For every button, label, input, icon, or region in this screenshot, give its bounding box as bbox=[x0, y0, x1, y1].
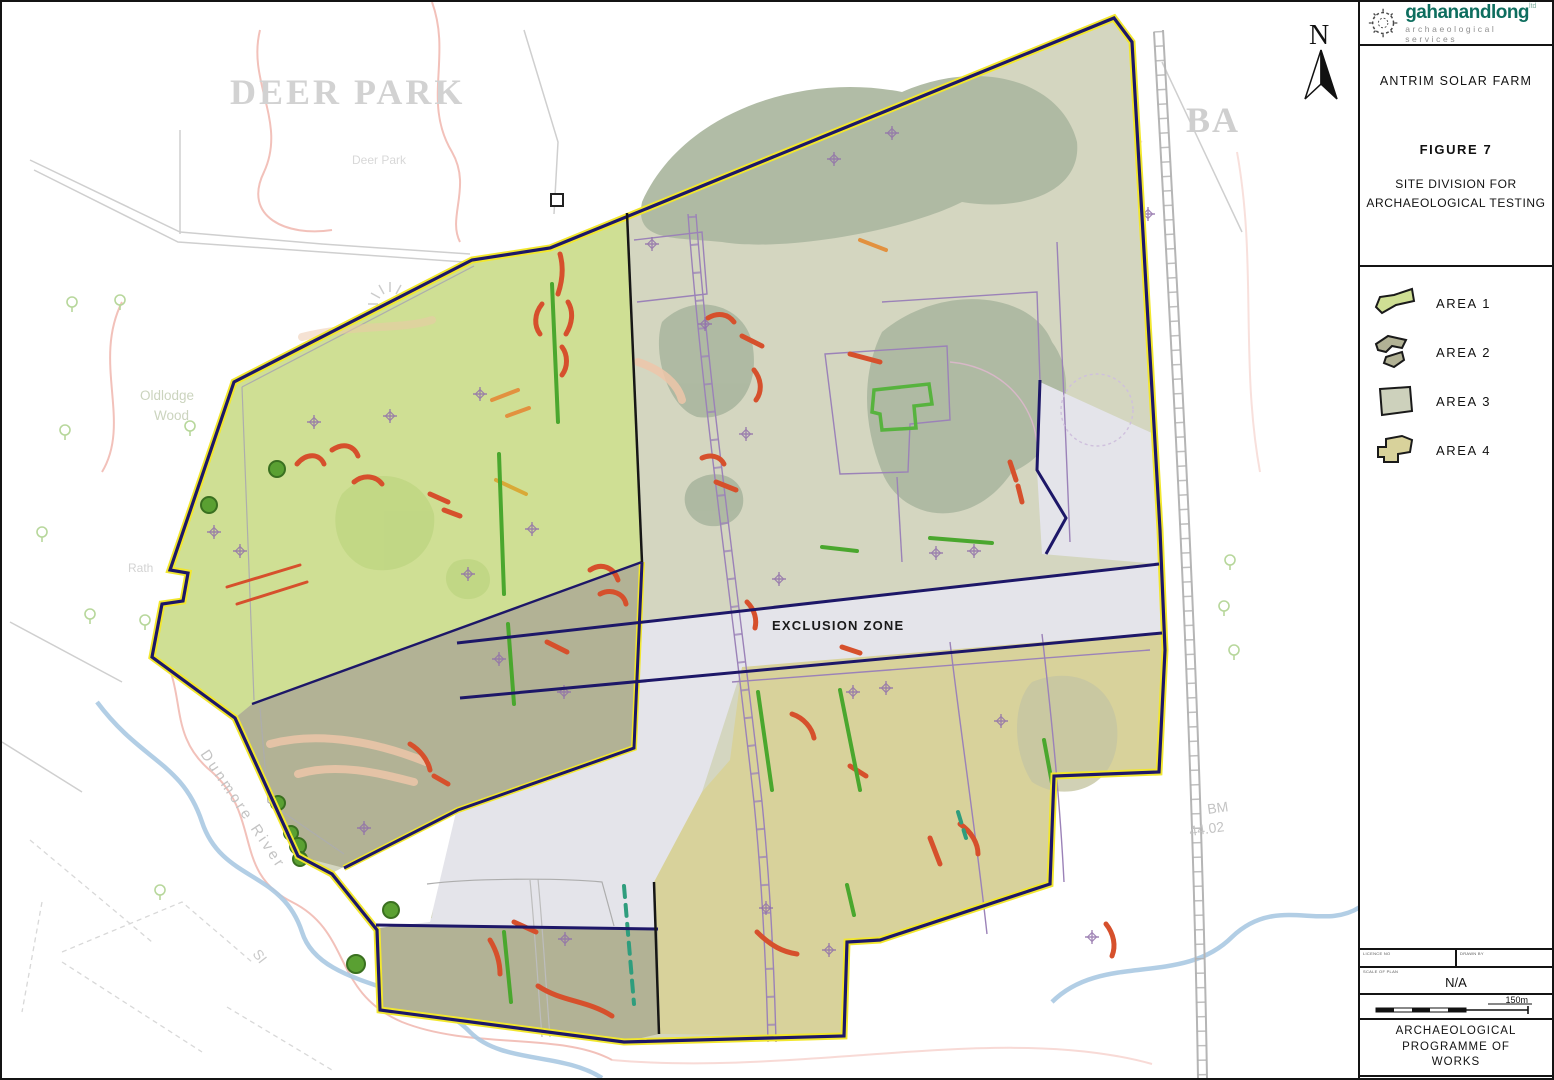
titleblock-cell-drawn: DRAWN BY bbox=[1455, 950, 1552, 966]
scale-bar-label: 150m bbox=[1505, 995, 1528, 1005]
deer-park-small-label: Deer Park bbox=[352, 153, 407, 167]
legend-swatch-area4 bbox=[1372, 430, 1420, 470]
figure-number: FIGURE 7 bbox=[1360, 142, 1552, 157]
legend-label-area4: AREA 4 bbox=[1436, 443, 1491, 458]
brand-name-b: long bbox=[1491, 2, 1529, 23]
exclusion-zone-label: EXCLUSION ZONE bbox=[772, 618, 904, 633]
brand-tagline: archaeological services bbox=[1405, 24, 1546, 44]
north-arrow: N bbox=[1305, 20, 1337, 99]
brand-name-a: gahanand bbox=[1405, 2, 1491, 23]
legend-swatch-area2 bbox=[1372, 332, 1420, 372]
basemap-field-lines bbox=[22, 840, 332, 1070]
figure-subtitle-line2: ARCHAEOLOGICAL TESTING bbox=[1360, 194, 1552, 213]
legend-label-area2: AREA 2 bbox=[1436, 345, 1491, 360]
legend-swatch-area3 bbox=[1372, 381, 1420, 421]
titleblock-row-programme: ARCHAEOLOGICAL PROGRAMME OF WORKS bbox=[1360, 1018, 1552, 1078]
survey-square-marker bbox=[551, 194, 563, 206]
programme-title-line2: WORKS bbox=[1360, 1055, 1552, 1071]
legend: AREA 1 AREA 2 AREA 3 AREA 4 bbox=[1360, 267, 1552, 948]
figure-title-block: ANTRIM SOLAR FARM FIGURE 7 SITE DIVISION… bbox=[1360, 46, 1552, 267]
scale-bar: 150m bbox=[1360, 995, 1550, 1020]
north-label: N bbox=[1309, 20, 1329, 51]
oldlodge-wood-label-2: Wood bbox=[154, 408, 189, 423]
brand-suffix: ltd bbox=[1529, 3, 1536, 10]
legend-item-area1: AREA 1 bbox=[1372, 283, 1542, 323]
programme-title-line1: ARCHAEOLOGICAL PROGRAMME OF bbox=[1360, 1024, 1552, 1055]
legend-swatch-area1 bbox=[1372, 283, 1420, 323]
legend-item-area3: AREA 3 bbox=[1372, 381, 1542, 421]
titleblock-row-1: LICENCE NO DRAWN BY bbox=[1360, 948, 1552, 966]
townland-east-label: BA bbox=[1186, 100, 1240, 140]
legend-label-area3: AREA 3 bbox=[1436, 394, 1491, 409]
legend-label-area1: AREA 1 bbox=[1436, 296, 1491, 311]
titleblock-cell-drawn-label: DRAWN BY bbox=[1460, 951, 1484, 956]
title-panel: gahanandlongltd archaeological services … bbox=[1358, 2, 1552, 1078]
drawing-titleblock: LICENCE NO DRAWN BY SCALE OF PLAN N/A bbox=[1360, 948, 1552, 1078]
rath-west-label: Rath bbox=[128, 561, 153, 575]
titleblock-cell-licence-label: LICENCE NO bbox=[1363, 951, 1390, 956]
benchmark-label-1: BM bbox=[1206, 798, 1229, 817]
si-label: SI bbox=[250, 946, 271, 966]
site-map-svg: DEER PARK Deer Park Rath Oldlodge Wood R… bbox=[2, 2, 1360, 1078]
benchmark-label-2: 44.02 bbox=[1188, 818, 1225, 839]
oldlodge-wood-label-1: Oldlodge bbox=[140, 388, 194, 403]
figure-subtitle-line1: SITE DIVISION FOR bbox=[1360, 175, 1552, 194]
legend-item-area2: AREA 2 bbox=[1372, 332, 1542, 372]
titleblock-row-scale-value: SCALE OF PLAN N/A bbox=[1360, 966, 1552, 993]
titleblock-row-scalebar: 150m bbox=[1360, 993, 1552, 1018]
titleblock-cell-scale-label: SCALE OF PLAN bbox=[1363, 969, 1398, 974]
company-logo-icon bbox=[1366, 5, 1400, 41]
deer-park-display-label: DEER PARK bbox=[230, 72, 465, 112]
drawing-sheet: DEER PARK Deer Park Rath Oldlodge Wood R… bbox=[0, 0, 1554, 1080]
area2-strip-polygon bbox=[376, 925, 659, 1042]
company-logo: gahanandlongltd archaeological services bbox=[1360, 2, 1552, 46]
legend-item-area4: AREA 4 bbox=[1372, 430, 1542, 470]
scale-value: N/A bbox=[1360, 975, 1552, 990]
site-area-fills bbox=[152, 18, 1165, 1042]
map-area: DEER PARK Deer Park Rath Oldlodge Wood R… bbox=[2, 2, 1360, 1078]
project-title: ANTRIM SOLAR FARM bbox=[1360, 74, 1552, 88]
titleblock-cell-licence: LICENCE NO bbox=[1360, 950, 1455, 966]
